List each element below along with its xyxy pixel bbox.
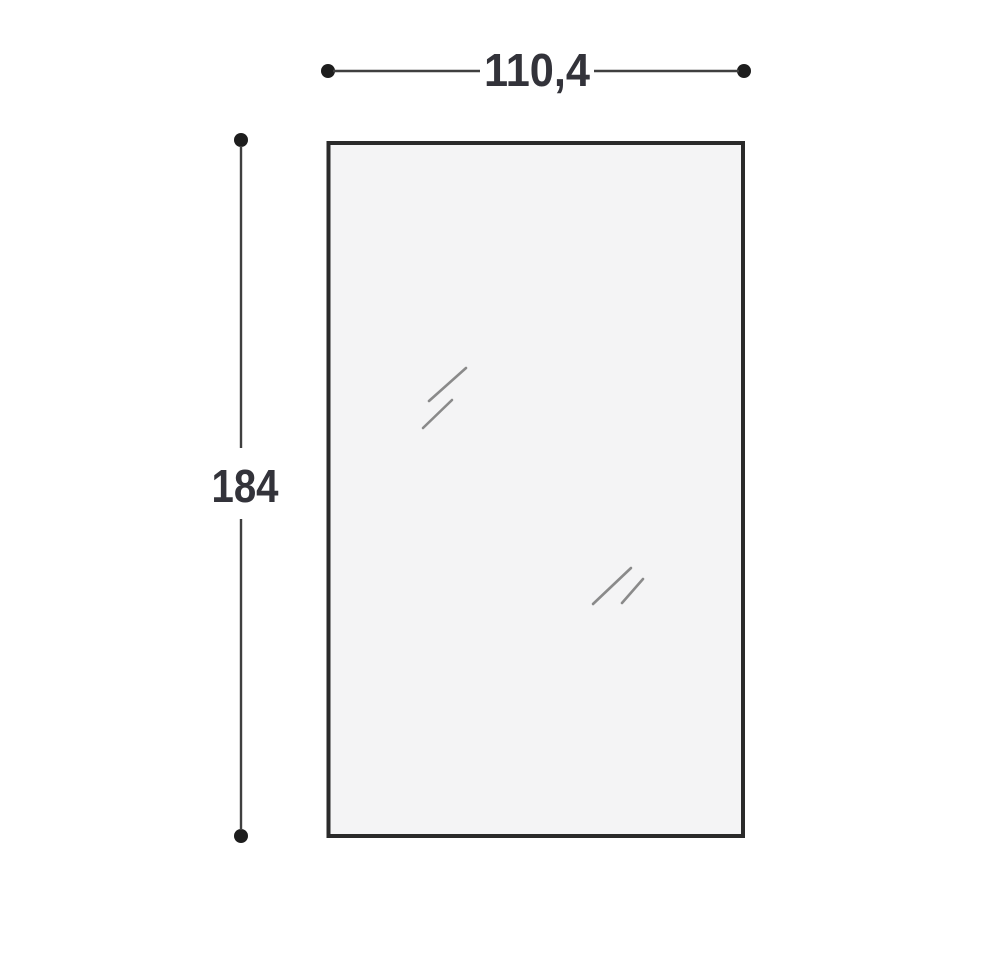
dimension-endpoint-dot [234,829,248,843]
dimension-diagram: 110,4 184 [0,0,1000,972]
width-dimension-label: 110,4 [484,44,590,96]
dimension-endpoint-dot [321,64,335,78]
diagram-canvas: 110,4 184 [0,0,1000,972]
height-dimension-label: 184 [212,460,279,512]
width-dimension: 110,4 [321,44,751,96]
dimension-endpoint-dot [737,64,751,78]
height-dimension: 184 [212,133,279,843]
panel-rect [329,143,744,836]
dimension-endpoint-dot [234,133,248,147]
